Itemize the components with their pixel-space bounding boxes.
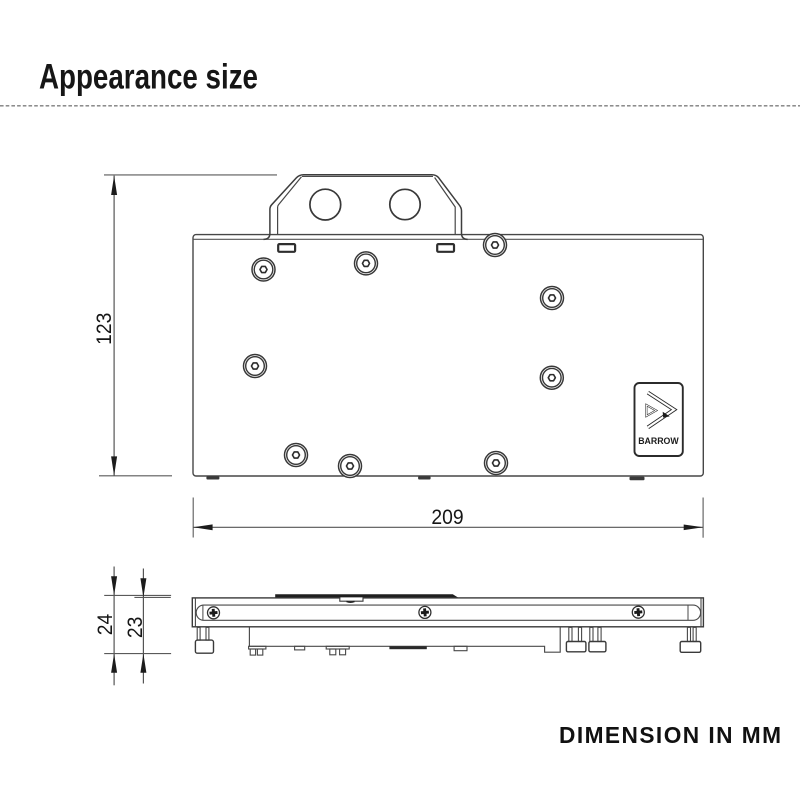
svg-text:209: 209 bbox=[431, 507, 463, 530]
svg-text:123: 123 bbox=[93, 313, 116, 345]
svg-text:DIMENSION IN MM: DIMENSION IN MM bbox=[559, 722, 782, 748]
svg-text:Appearance size: Appearance size bbox=[39, 58, 258, 97]
svg-text:24: 24 bbox=[94, 614, 117, 635]
svg-text:23: 23 bbox=[124, 617, 147, 638]
svg-text:BARROW: BARROW bbox=[638, 436, 679, 446]
